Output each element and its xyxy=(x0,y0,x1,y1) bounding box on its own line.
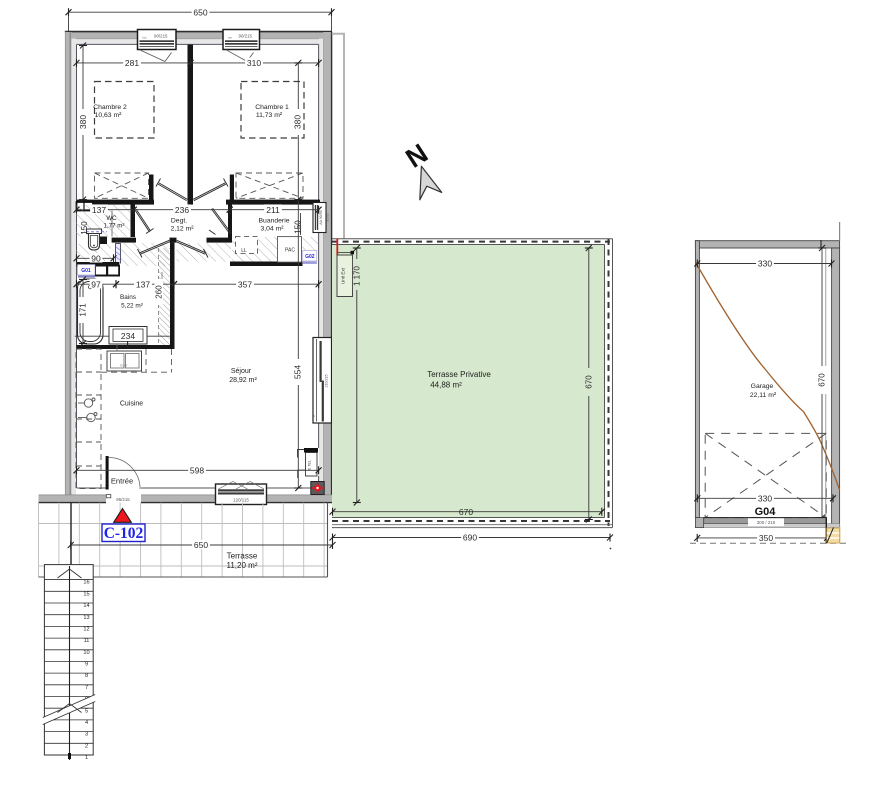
svg-text:380: 380 xyxy=(78,115,88,129)
svg-text:Buanderie: Buanderie xyxy=(259,218,290,225)
svg-text:260: 260 xyxy=(155,285,164,299)
svg-text:G04: G04 xyxy=(755,506,777,518)
svg-text:16: 16 xyxy=(83,580,89,586)
svg-text:G02: G02 xyxy=(305,254,315,260)
svg-text:357: 357 xyxy=(238,279,252,289)
svg-text:670: 670 xyxy=(459,507,473,517)
svg-text:90/95: 90/95 xyxy=(326,213,330,222)
svg-text:281: 281 xyxy=(125,58,139,68)
svg-text:90: 90 xyxy=(91,253,101,263)
svg-text:1: 1 xyxy=(85,755,88,761)
svg-text:10,63 m²: 10,63 m² xyxy=(95,112,123,119)
svg-text:330: 330 xyxy=(758,259,772,269)
svg-text:380: 380 xyxy=(292,115,302,129)
svg-text:44,88 m²: 44,88 m² xyxy=(430,381,462,390)
svg-text:Garage: Garage xyxy=(751,383,774,390)
svg-text:LL: LL xyxy=(241,248,247,254)
svg-text:210/215: 210/215 xyxy=(325,375,329,388)
svg-text:Chambre 1: Chambre 1 xyxy=(255,104,289,111)
svg-text:350: 350 xyxy=(759,533,773,543)
svg-text:171: 171 xyxy=(79,303,88,317)
svg-text:2,12 m²: 2,12 m² xyxy=(170,226,194,233)
svg-text:650: 650 xyxy=(194,540,208,550)
svg-text:90/215: 90/215 xyxy=(154,34,168,39)
svg-text:670: 670 xyxy=(584,375,593,389)
svg-text:C-102: C-102 xyxy=(104,525,144,542)
svg-text:10: 10 xyxy=(83,650,89,656)
svg-text:690: 690 xyxy=(463,533,477,543)
svg-text:15: 15 xyxy=(83,591,89,597)
svg-text:vr: vr xyxy=(312,415,316,418)
svg-text:9: 9 xyxy=(85,662,88,668)
svg-text:Chambre 2: Chambre 2 xyxy=(93,104,127,111)
svg-text:3: 3 xyxy=(85,732,88,738)
svg-text:Séjour: Séjour xyxy=(231,368,252,375)
svg-text:5: 5 xyxy=(85,708,88,714)
svg-text:5,22 m²: 5,22 m² xyxy=(121,303,143,310)
svg-text:3,04 m²: 3,04 m² xyxy=(260,226,284,233)
svg-text:bat: bat xyxy=(143,36,147,40)
svg-text:Degt.: Degt. xyxy=(171,218,187,225)
svg-text:97: 97 xyxy=(91,279,101,289)
svg-text:12: 12 xyxy=(83,627,89,633)
svg-text:13: 13 xyxy=(83,615,89,621)
svg-text:8: 8 xyxy=(85,673,88,679)
svg-text:598: 598 xyxy=(190,465,204,475)
svg-text:Terrasse: Terrasse xyxy=(227,552,258,561)
svg-text:150: 150 xyxy=(294,220,303,234)
svg-text:11,73 m²: 11,73 m² xyxy=(256,112,283,119)
svg-text:300 / 210: 300 / 210 xyxy=(757,520,776,525)
svg-text:WC: WC xyxy=(106,215,117,222)
svg-text:236: 236 xyxy=(175,205,189,215)
svg-text:Bains: Bains xyxy=(120,294,136,301)
svg-text:bat: bat xyxy=(228,36,232,40)
svg-text:2: 2 xyxy=(85,743,88,749)
svg-text:4: 4 xyxy=(85,720,88,726)
svg-text:Evier: Evier xyxy=(120,364,128,368)
svg-text:90/215: 90/215 xyxy=(239,34,253,39)
svg-text:95/215: 95/215 xyxy=(116,497,130,502)
svg-text:554: 554 xyxy=(292,365,302,379)
svg-text:120/115: 120/115 xyxy=(233,498,249,503)
svg-text:330: 330 xyxy=(758,493,772,503)
svg-text:Entrée: Entrée xyxy=(111,477,133,486)
svg-text:137: 137 xyxy=(92,205,106,215)
svg-text:AA 90/95: AA 90/95 xyxy=(319,210,323,225)
svg-text:670: 670 xyxy=(818,373,827,387)
svg-text:11: 11 xyxy=(84,638,90,644)
svg-text:G01: G01 xyxy=(81,268,91,274)
svg-text:650: 650 xyxy=(193,7,207,17)
svg-text:234: 234 xyxy=(121,331,135,341)
svg-text:Cuisine: Cuisine xyxy=(120,401,143,408)
svg-text:150: 150 xyxy=(80,221,89,235)
svg-text:Unit Ext: Unit Ext xyxy=(341,267,346,284)
svg-text:PAC: PAC xyxy=(285,248,295,254)
svg-text:22,11 m²: 22,11 m² xyxy=(750,392,777,399)
svg-text:1 170: 1 170 xyxy=(352,265,361,286)
svg-text:E TEL: E TEL xyxy=(308,460,312,470)
svg-text:1,77 m²: 1,77 m² xyxy=(104,223,125,230)
svg-text:11,20 m²: 11,20 m² xyxy=(227,561,258,570)
svg-text:137: 137 xyxy=(136,279,150,289)
svg-text:Terrasse Privative: Terrasse Privative xyxy=(427,370,491,379)
svg-text:14: 14 xyxy=(83,603,89,609)
svg-text:310: 310 xyxy=(247,58,261,68)
svg-text:7: 7 xyxy=(85,685,88,691)
svg-text:211: 211 xyxy=(266,205,280,215)
svg-text:28,92 m²: 28,92 m² xyxy=(229,377,257,384)
